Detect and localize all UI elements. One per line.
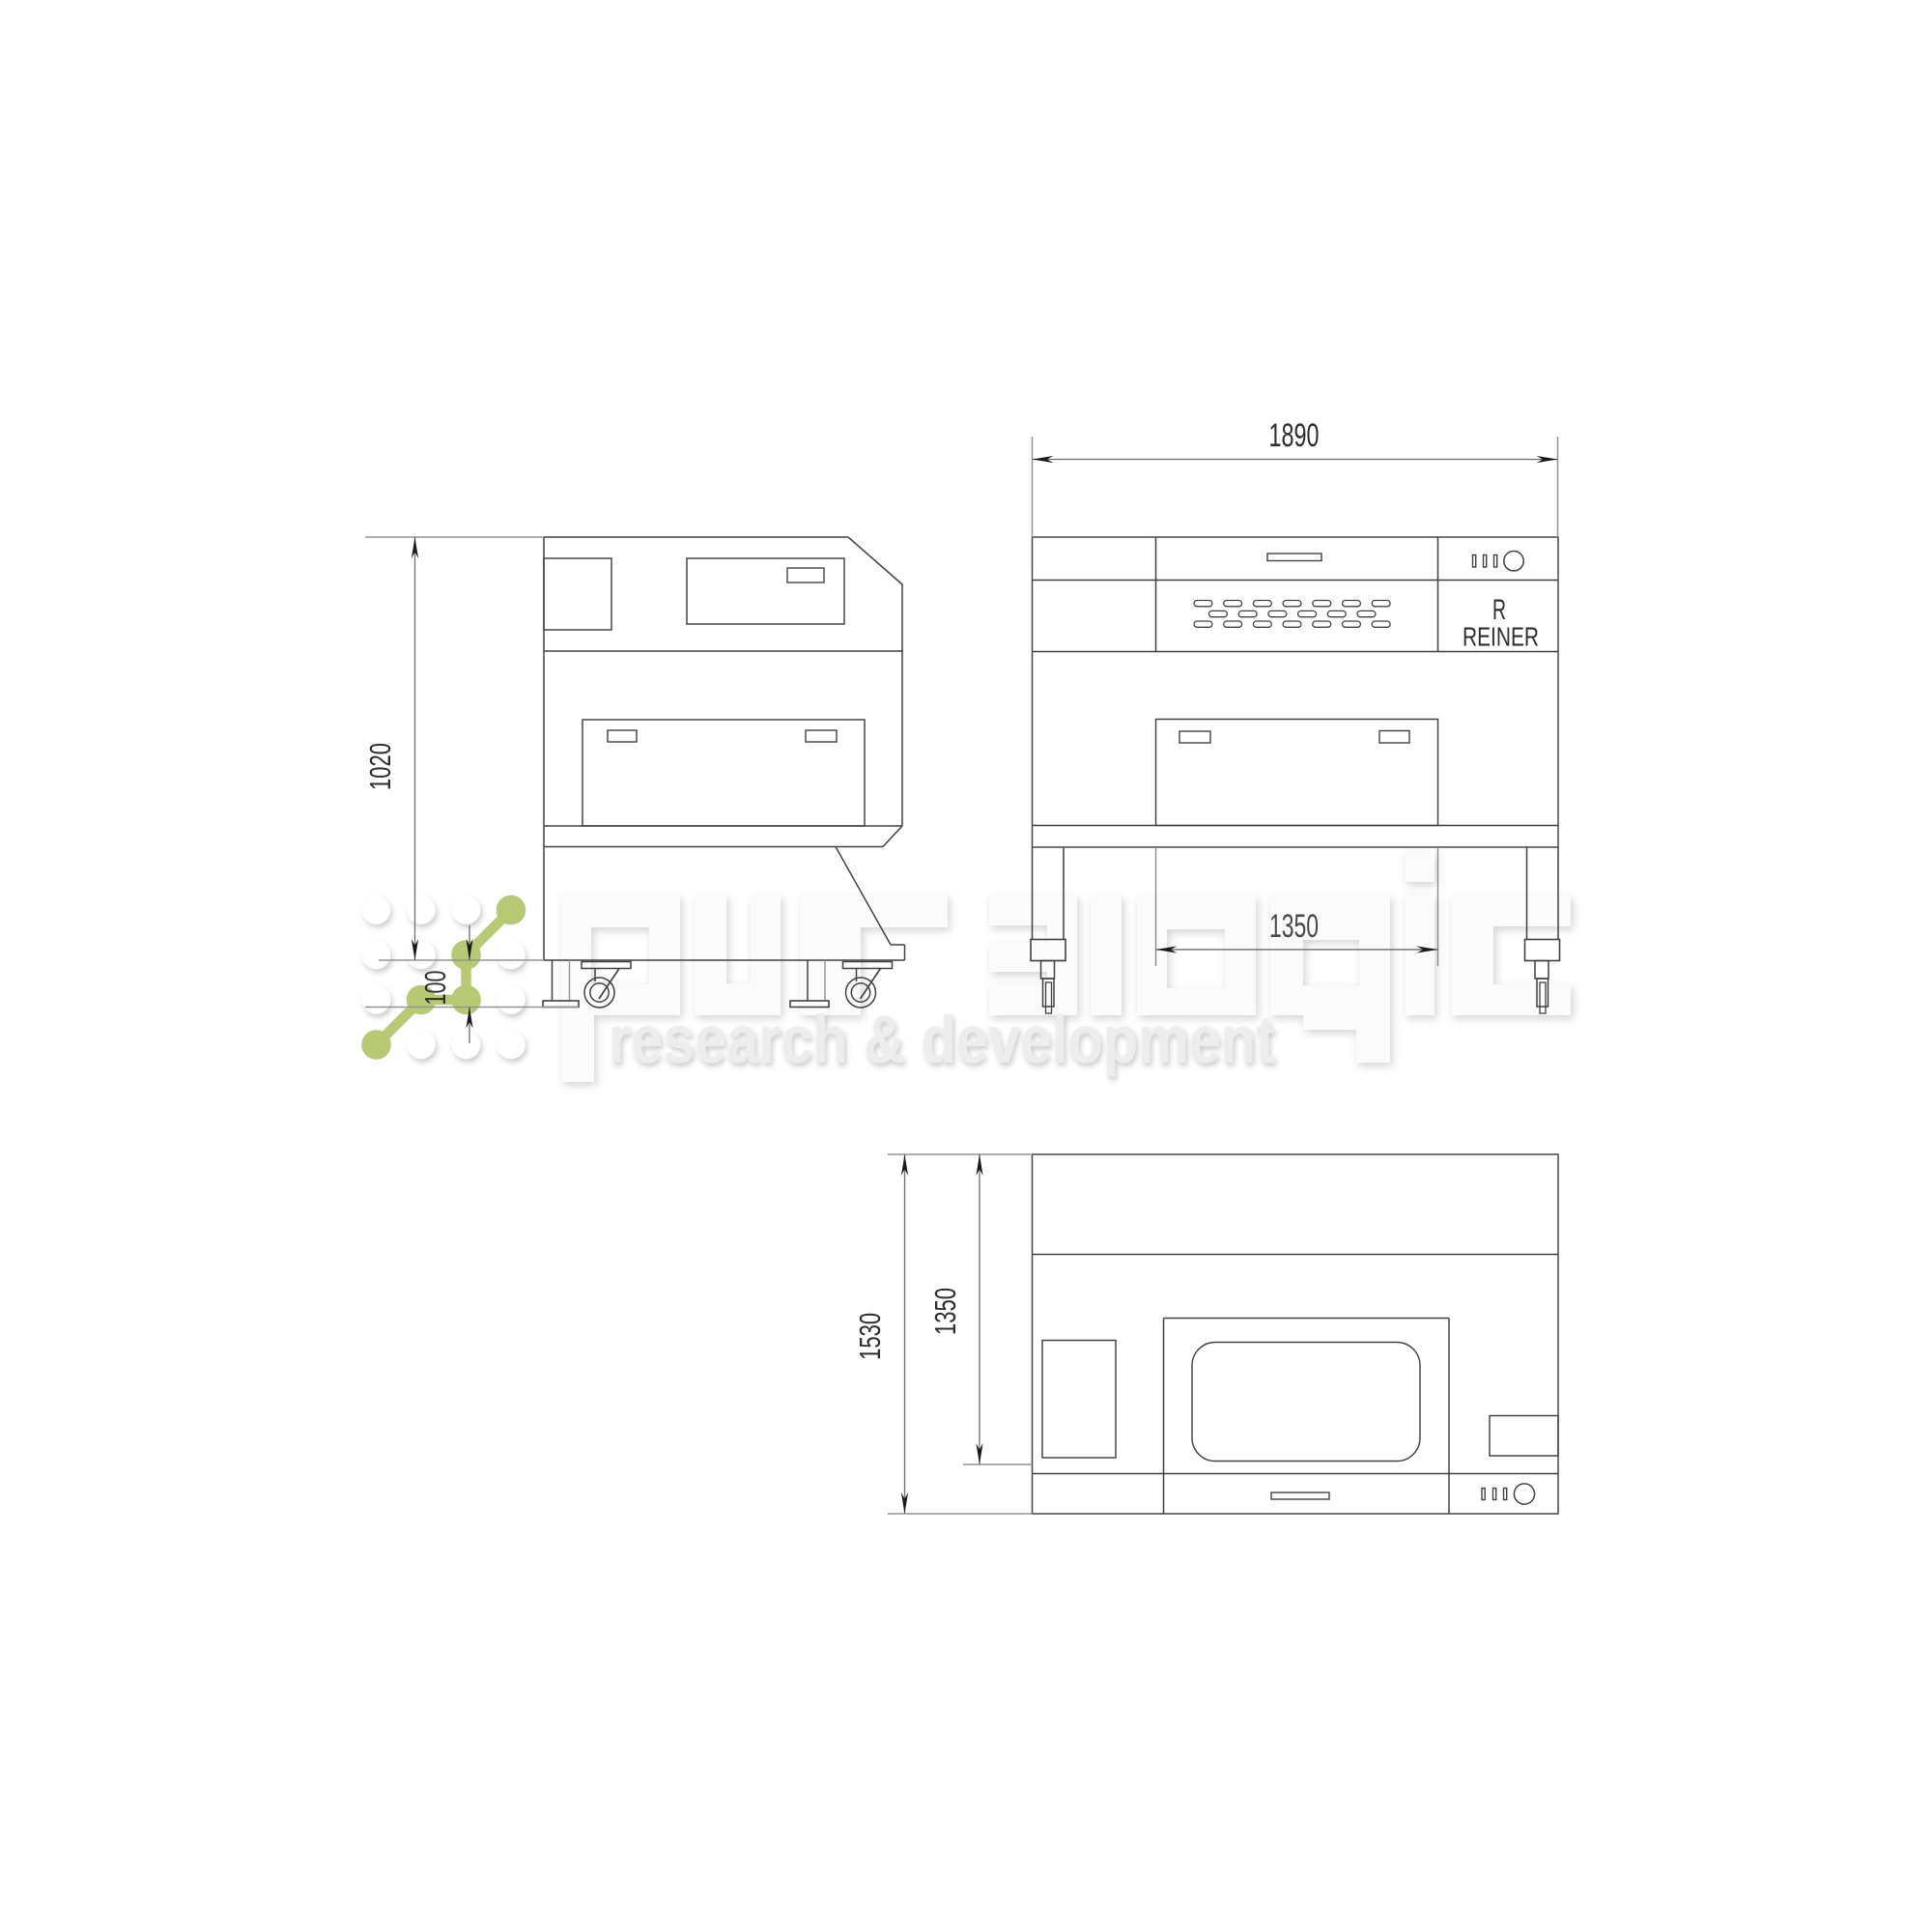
svg-text:REINER: REINER	[1463, 622, 1539, 652]
svg-text:100: 100	[418, 971, 452, 1006]
svg-text:1020: 1020	[363, 743, 397, 790]
svg-text:1350: 1350	[1269, 908, 1319, 945]
svg-text:1350: 1350	[928, 1288, 962, 1335]
svg-text:research & development: research & development	[609, 1002, 1275, 1077]
svg-text:1530: 1530	[853, 1313, 887, 1360]
svg-text:1890: 1890	[1269, 417, 1320, 454]
